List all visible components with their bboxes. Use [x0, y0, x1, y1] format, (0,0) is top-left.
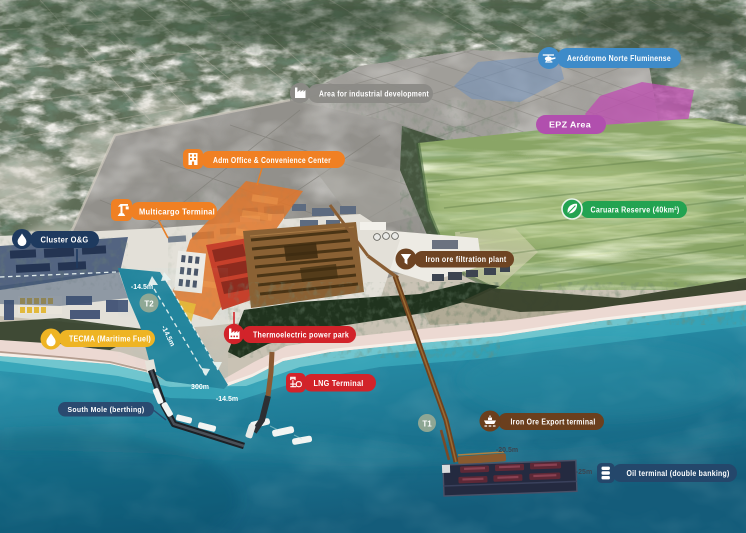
svg-text:300m: 300m: [191, 384, 209, 391]
svg-text:T1: T1: [422, 420, 432, 429]
svg-text:South Mole (berthing): South Mole (berthing): [68, 405, 145, 414]
svg-text:Iron Ore Export terminal: Iron Ore Export terminal: [511, 417, 596, 426]
svg-text:EPZ Area: EPZ Area: [549, 120, 591, 130]
svg-text:Iron ore filtration plant: Iron ore filtration plant: [426, 255, 507, 264]
svg-text:T2: T2: [144, 300, 154, 309]
svg-text:LNG Terminal: LNG Terminal: [314, 378, 364, 388]
svg-text:-14.5m: -14.5m: [216, 396, 238, 403]
svg-text:Area for industrial developmen: Area for industrial development: [319, 89, 429, 98]
svg-text:-14.5m: -14.5m: [131, 284, 153, 291]
svg-text:Adm Office & Convenience Cente: Adm Office & Convenience Center: [213, 156, 331, 165]
svg-text:-20.5m: -20.5m: [496, 447, 518, 454]
svg-text:Multicargo Terminal: Multicargo Terminal: [139, 207, 215, 216]
svg-text:Oil terminal (double banking): Oil terminal (double banking): [627, 469, 730, 478]
svg-text:-25m: -25m: [576, 469, 592, 476]
svg-text:Thermoelectric power park: Thermoelectric power park: [253, 331, 349, 340]
svg-text:Aeródromo Norte Fluminense: Aeródromo Norte Fluminense: [567, 53, 671, 63]
svg-text:TECMA (Maritime Fuel): TECMA (Maritime Fuel): [69, 335, 151, 344]
svg-text:Caruara Reserve (40km²): Caruara Reserve (40km²): [591, 205, 680, 214]
svg-text:Cluster O&G: Cluster O&G: [41, 235, 89, 245]
